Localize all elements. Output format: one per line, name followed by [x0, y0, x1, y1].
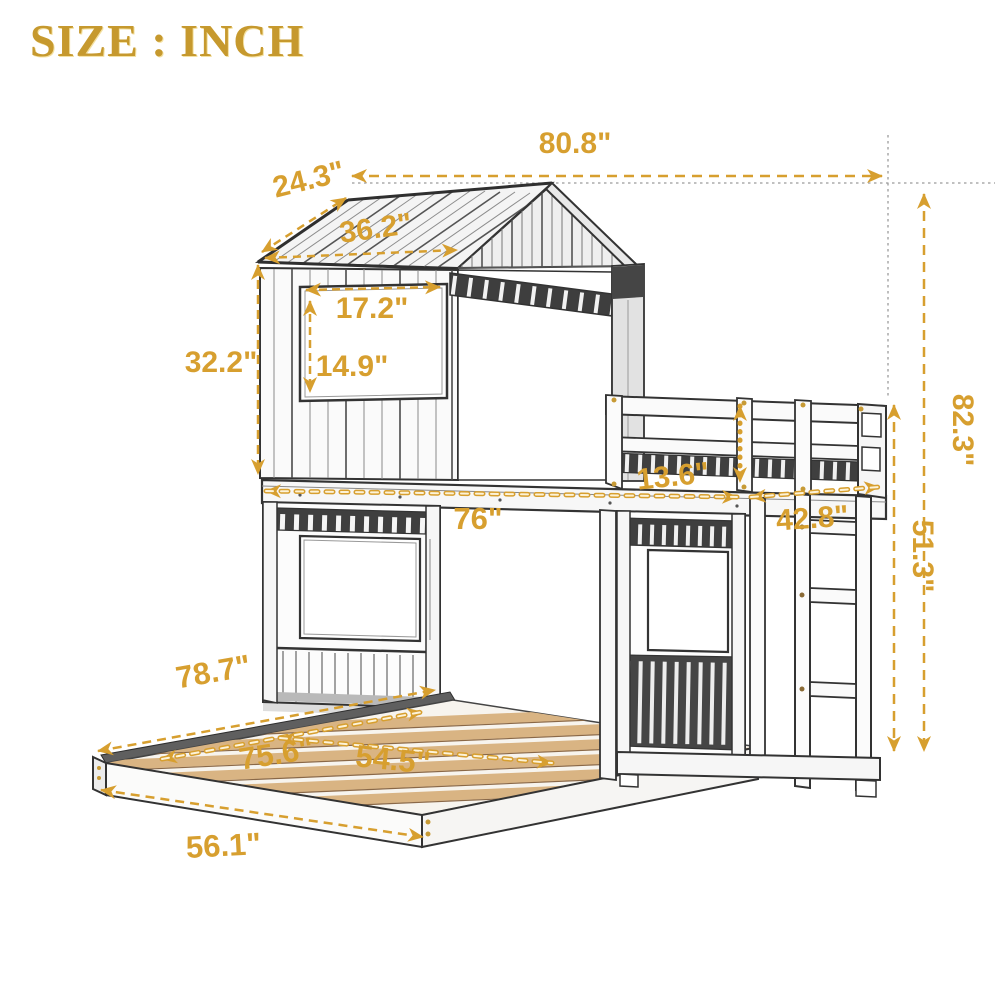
dim-upper-house-height: 32.2"	[185, 265, 258, 474]
ladder	[795, 494, 871, 792]
diagram-title: SIZE : INCH	[30, 14, 304, 67]
middle-stud	[600, 510, 616, 780]
dim-window-width-label: 17.2"	[336, 292, 409, 325]
dim-under-loft-height-label: 51.3"	[906, 520, 939, 593]
corner-post	[750, 497, 765, 760]
ladder-rung-3	[810, 682, 856, 698]
lower-right-window	[648, 550, 728, 652]
guardrail-post-mid	[737, 398, 752, 492]
lower-left-wall-post-right	[426, 506, 440, 708]
ladder-left-rail	[795, 494, 810, 788]
left-foot	[620, 774, 638, 787]
dim-upper-bunk-length-label: 76"	[453, 501, 502, 536]
bunk-bed-dimension-drawing: 80.8" 24.3" 36.2" 17.2" 14.9" 32.2"	[0, 0, 1000, 1000]
ladder-rung-2	[810, 588, 856, 604]
right-foot	[856, 780, 876, 797]
dim-overall-height-label: 82.3"	[946, 394, 979, 467]
lower-left-wall-post-left	[263, 502, 277, 703]
dimension-diagram-page: SIZE : INCH	[0, 0, 1000, 1000]
lower-right-section	[600, 494, 880, 797]
ladder-right-rail	[856, 496, 871, 792]
dim-overall-height: 82.3"	[924, 194, 979, 751]
dim-under-loft-height: 51.3"	[894, 405, 939, 751]
upper-front-opening	[450, 270, 612, 480]
lower-right-wall	[617, 511, 745, 762]
playhouse-sketch	[258, 183, 886, 717]
dim-lower-bed-length-label: 78.7"	[173, 648, 253, 696]
dim-lower-bed-width-label: 56.1"	[185, 826, 262, 865]
dim-roof-slope-depth-label: 24.3"	[269, 155, 347, 205]
guardrail-post-left	[606, 395, 622, 489]
dim-overall-width-label: 80.8"	[539, 127, 612, 160]
lower-left-window	[300, 536, 420, 641]
dim-upper-house-height-label: 32.2"	[185, 346, 258, 379]
lower-left-wall	[263, 502, 440, 717]
dim-overall-width: 80.8"	[352, 127, 882, 176]
dim-upper-bed-width-label: 42.8"	[775, 500, 850, 538]
bottom-beam	[617, 752, 880, 780]
guardrail-post-right	[795, 400, 811, 494]
dim-window-height-label: 14.9"	[316, 350, 389, 383]
